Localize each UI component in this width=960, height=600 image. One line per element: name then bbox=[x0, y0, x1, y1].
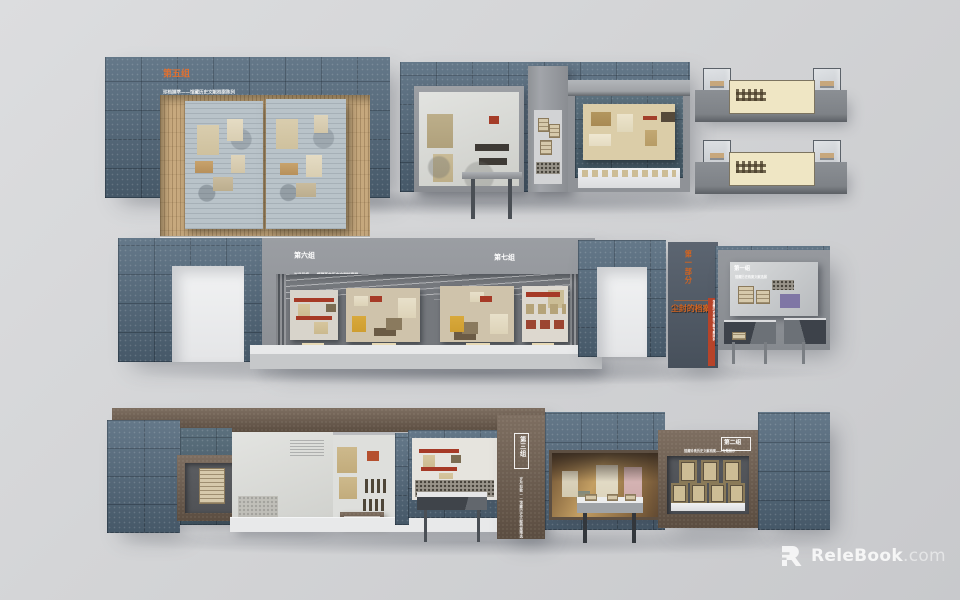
relebook-logo-icon bbox=[780, 544, 804, 568]
table1-leg-left bbox=[424, 510, 427, 542]
exhibit-wall-group5: 第五组 珍档撷萃——馆藏历史文献档案陈列 bbox=[105, 57, 390, 198]
doc-stand-1 bbox=[199, 468, 225, 504]
exhibit-wall-top-middle bbox=[400, 62, 690, 192]
group5-display-opening bbox=[160, 95, 370, 245]
group1-purple-card bbox=[780, 294, 800, 308]
exhibit-board-2 bbox=[346, 288, 420, 342]
group1-photo bbox=[772, 280, 794, 290]
group2-frame-5 bbox=[690, 483, 707, 504]
display-pillar bbox=[528, 66, 568, 192]
group1-doc-1 bbox=[738, 286, 754, 304]
group5-map-panel-left bbox=[185, 101, 263, 229]
case-item bbox=[820, 153, 834, 160]
vitrine-shelf-2 bbox=[695, 140, 847, 196]
display-base-ledge bbox=[250, 345, 602, 369]
table-leg-right bbox=[508, 179, 512, 219]
marble-wall bbox=[232, 432, 333, 528]
tile-strip bbox=[395, 433, 409, 525]
group2-title: 第二组 bbox=[724, 439, 741, 446]
pillar-panel bbox=[534, 110, 562, 184]
watermark: ReleBook.com bbox=[780, 544, 946, 568]
group6-title: 第六组 bbox=[294, 252, 401, 261]
table-top bbox=[462, 172, 522, 179]
table2-leg-right bbox=[632, 513, 636, 543]
faint-text-block bbox=[290, 440, 324, 456]
part1-divider bbox=[674, 300, 708, 301]
tile-block-left bbox=[107, 420, 180, 533]
plinth-card-row bbox=[582, 170, 676, 177]
vitrine-doc bbox=[732, 332, 746, 340]
recess-slats-left bbox=[276, 274, 286, 348]
part1-caption: 尘封的档案 bbox=[671, 305, 711, 315]
alcove-backwall bbox=[575, 96, 683, 178]
stamp-panel-2 bbox=[729, 152, 815, 186]
angled-vitrine-left bbox=[724, 320, 776, 344]
table2-leg-left bbox=[583, 513, 587, 543]
ledge-front-face bbox=[250, 354, 602, 369]
table1-leg-right bbox=[477, 510, 480, 542]
tile-wall-doorway-left bbox=[118, 238, 262, 362]
table2-body bbox=[577, 503, 643, 513]
group3-subtitle: 岁月如歌——馆藏历史文献档案精选 bbox=[519, 477, 523, 538]
alcove-plinth bbox=[578, 168, 680, 188]
group1-caption: 馆藏历史档案文献选展 bbox=[735, 275, 841, 279]
vitrine-leg-2 bbox=[764, 342, 767, 364]
group1-doc-2 bbox=[756, 290, 770, 304]
tile-wall-bottom-right bbox=[758, 412, 830, 530]
group3-title: 第三组 bbox=[518, 436, 526, 457]
doorway-right bbox=[597, 267, 647, 357]
group3-title-box: 第三组 bbox=[514, 433, 529, 469]
group2-frame-2 bbox=[701, 460, 719, 483]
watermark-brand: ReleBook bbox=[811, 546, 903, 566]
board-collage bbox=[415, 441, 494, 479]
group5-title: 第五组 bbox=[163, 68, 283, 79]
artifact-table-2 bbox=[577, 497, 643, 545]
exhibit-board-4 bbox=[522, 286, 568, 342]
display-table bbox=[462, 172, 522, 232]
pillar-doc-1 bbox=[538, 118, 549, 132]
exhibit-board-1 bbox=[290, 290, 338, 340]
part1-red-strip: 馆藏历史档案文献专题陈列 bbox=[708, 298, 715, 366]
group2-frame-6 bbox=[709, 483, 726, 504]
part1-title: 第一部分 bbox=[682, 250, 691, 285]
doorway-left bbox=[172, 266, 244, 362]
part1-panel: 第一部分 尘封的档案 馆藏历史档案文献专题陈列 bbox=[668, 242, 718, 368]
case-item bbox=[710, 81, 724, 88]
tile-wall-doorway-right bbox=[578, 240, 666, 357]
display-recess bbox=[276, 274, 580, 348]
table1-body bbox=[417, 497, 487, 510]
exhibit-board-3 bbox=[440, 286, 514, 342]
alcove-canopy bbox=[568, 80, 690, 96]
group3-pillar: 第三组 岁月如歌——馆藏历史文献档案精选 bbox=[497, 415, 545, 539]
pillar-doc-3 bbox=[540, 140, 552, 155]
case-item bbox=[710, 153, 724, 160]
table2-artifact-2 bbox=[607, 494, 618, 501]
group1-board: 第一组 馆藏历史档案文献选展 bbox=[730, 262, 818, 316]
table-leg-left bbox=[471, 179, 475, 219]
vitrine-leg-3 bbox=[802, 342, 805, 364]
pillar-photo-strip bbox=[536, 162, 560, 174]
pillar-doc-2 bbox=[549, 124, 560, 138]
group5-map-panel-right bbox=[266, 99, 346, 229]
exhibition-board bbox=[412, 438, 497, 500]
lightbox-alcove bbox=[568, 80, 690, 192]
group2-frame-3 bbox=[723, 460, 741, 483]
group1-title: 第一组 bbox=[734, 266, 750, 273]
group2-box: 第二组 馆藏珍贵历史文献档案——专题展示 bbox=[658, 430, 758, 528]
group2-frame-7 bbox=[728, 483, 745, 504]
alcove-collage-board bbox=[583, 104, 675, 160]
render-canvas: 第五组 珍档撷萃——馆藏历史文献档案陈列 bbox=[0, 0, 960, 600]
table2-artifact-3 bbox=[625, 494, 636, 501]
ledge-top-face bbox=[250, 345, 602, 354]
group2-shelf bbox=[671, 503, 745, 511]
vitrine-leg-1 bbox=[732, 342, 735, 364]
vitrine-shelf-1 bbox=[695, 68, 847, 124]
watermark-suffix: .com bbox=[903, 546, 946, 566]
angled-vitrine-right bbox=[784, 318, 826, 344]
group1-unit: 第一组 馆藏历史档案文献选展 bbox=[718, 250, 830, 350]
group2-interior bbox=[667, 456, 749, 514]
group2-frame-4 bbox=[671, 483, 688, 504]
table2-artifact-1 bbox=[585, 494, 597, 501]
stamp-panel-1 bbox=[729, 80, 815, 114]
case-item bbox=[820, 81, 834, 88]
group2-frame-1 bbox=[679, 460, 697, 483]
artifact-table-1 bbox=[417, 492, 487, 545]
